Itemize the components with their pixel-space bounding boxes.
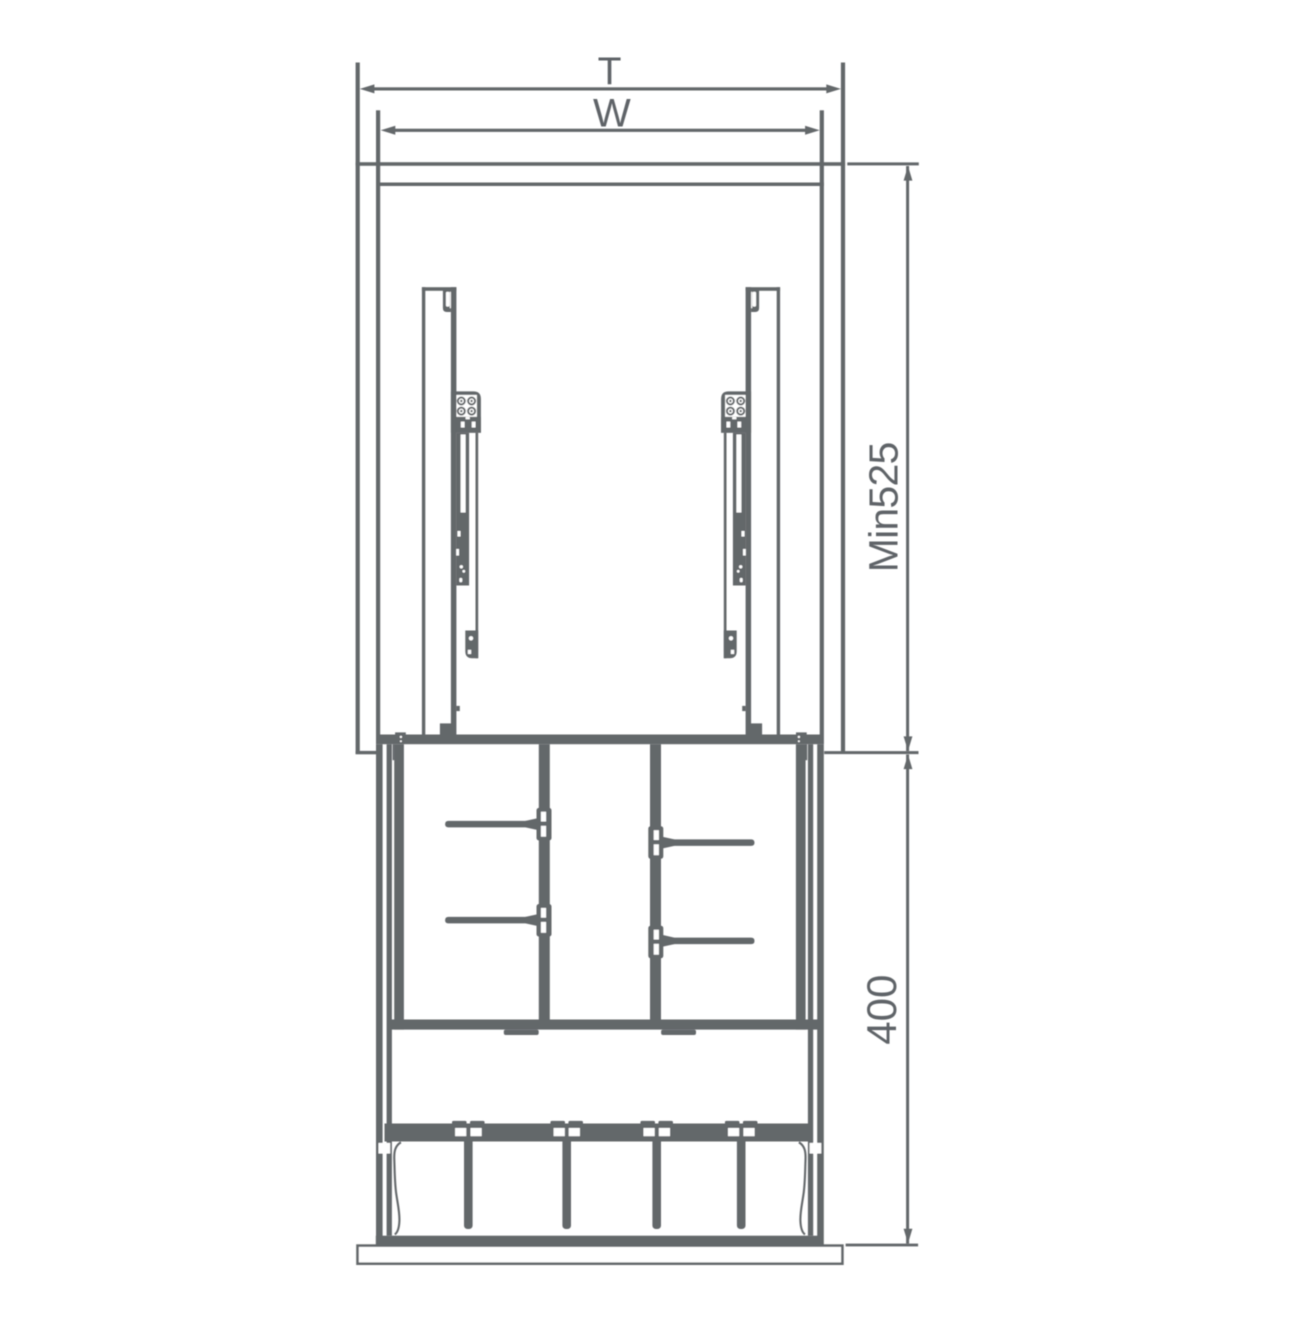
svg-text:T: T [598, 51, 622, 94]
svg-text:Min525: Min525 [860, 443, 906, 573]
svg-text:400: 400 [858, 975, 905, 1045]
